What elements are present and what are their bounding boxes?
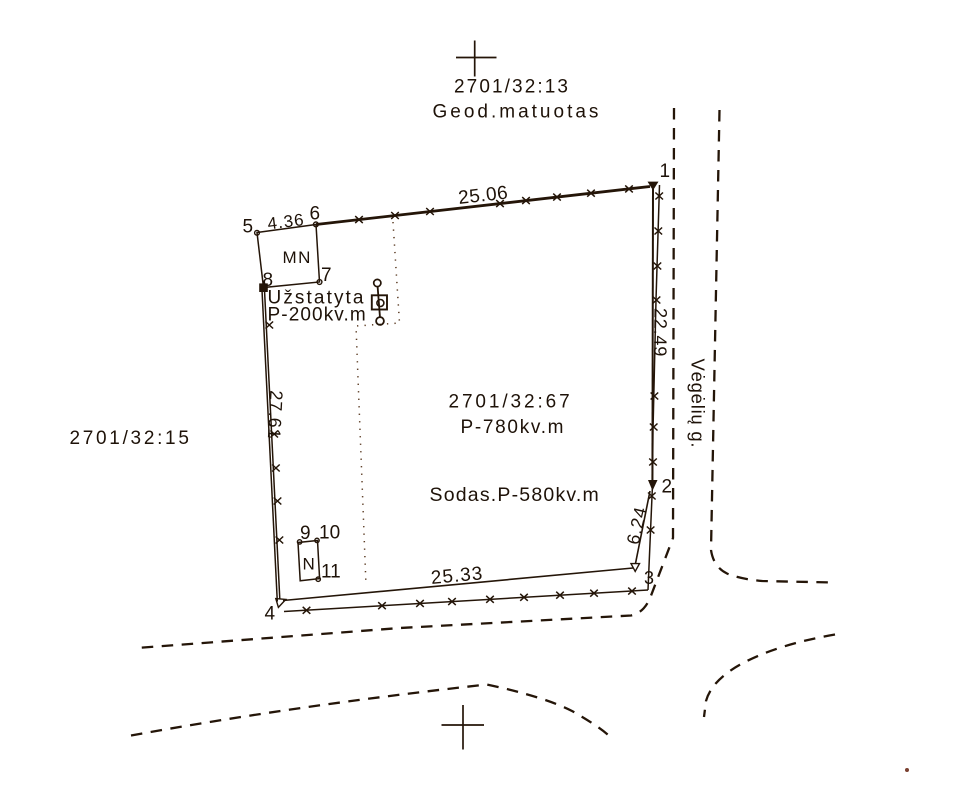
svg-text:6.24: 6.24 <box>623 505 651 547</box>
svg-text:2701/32:15: 2701/32:15 <box>70 428 192 449</box>
svg-text:Sodas.P-580kv.m: Sodas.P-580kv.m <box>430 484 600 506</box>
svg-text:11: 11 <box>321 562 341 583</box>
svg-text:2701/32:13: 2701/32:13 <box>454 77 570 98</box>
svg-text:MN: MN <box>283 248 312 267</box>
svg-text:27.61: 27.61 <box>264 390 287 440</box>
svg-text:Vėgėlių g.: Vėgėlių g. <box>688 359 709 449</box>
svg-text:10: 10 <box>319 523 340 544</box>
svg-text:P-780kv.m: P-780kv.m <box>461 417 566 438</box>
svg-text:2701/32:67: 2701/32:67 <box>449 392 573 413</box>
svg-text:4.36: 4.36 <box>266 210 305 233</box>
svg-text:2: 2 <box>662 477 673 498</box>
svg-text:Geod.matuotas: Geod.matuotas <box>433 102 602 123</box>
svg-text:6: 6 <box>310 204 321 225</box>
svg-text:22.49: 22.49 <box>650 308 670 357</box>
svg-text:7: 7 <box>321 265 332 286</box>
svg-text:25.33: 25.33 <box>430 563 484 589</box>
svg-text:4: 4 <box>265 604 276 625</box>
svg-text:1: 1 <box>660 161 671 182</box>
svg-text:P-200kv.m: P-200kv.m <box>268 305 367 326</box>
svg-text:N: N <box>303 555 315 574</box>
svg-text:3: 3 <box>644 568 654 588</box>
svg-text:5: 5 <box>243 217 254 238</box>
svg-text:9: 9 <box>300 523 311 544</box>
